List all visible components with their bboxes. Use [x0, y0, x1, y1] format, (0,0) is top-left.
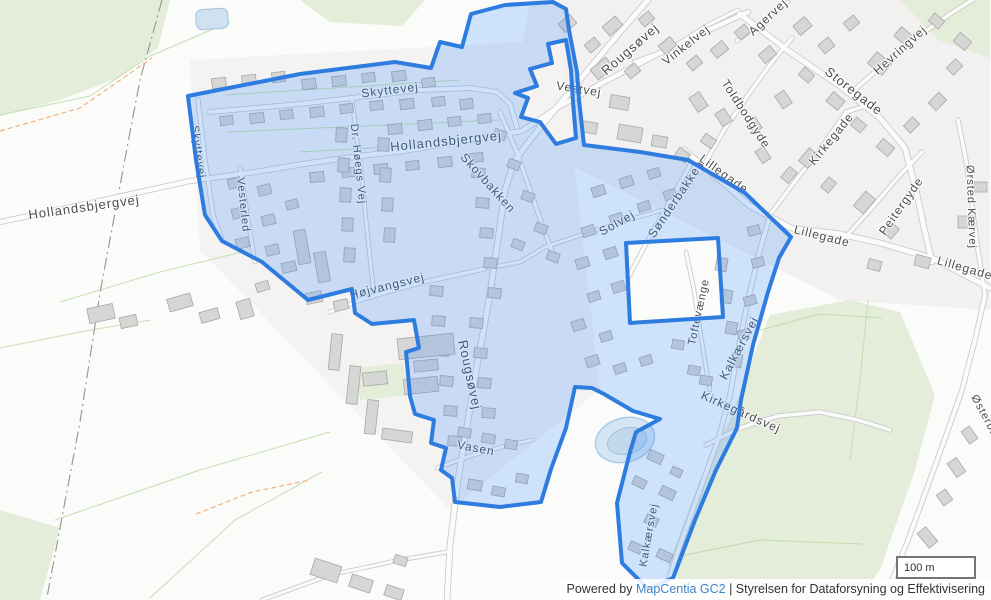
- attribution-bar: Powered by MapCentia GC2 | Styrelsen for…: [559, 579, 991, 600]
- selection-polygon: [188, 2, 791, 589]
- attribution-link[interactable]: MapCentia GC2: [636, 582, 726, 596]
- attribution-prefix: Powered by: [567, 582, 636, 596]
- scale-label: 100 m: [904, 562, 935, 574]
- selection-overlay-svg: [0, 0, 991, 600]
- map-canvas[interactable]: SkyttevejSkyttevejHollandsbjergvejHollan…: [0, 0, 991, 600]
- attribution-suffix: | Styrelsen for Dataforsyning og Effekti…: [726, 582, 985, 596]
- scale-bar: 100 m: [896, 556, 976, 579]
